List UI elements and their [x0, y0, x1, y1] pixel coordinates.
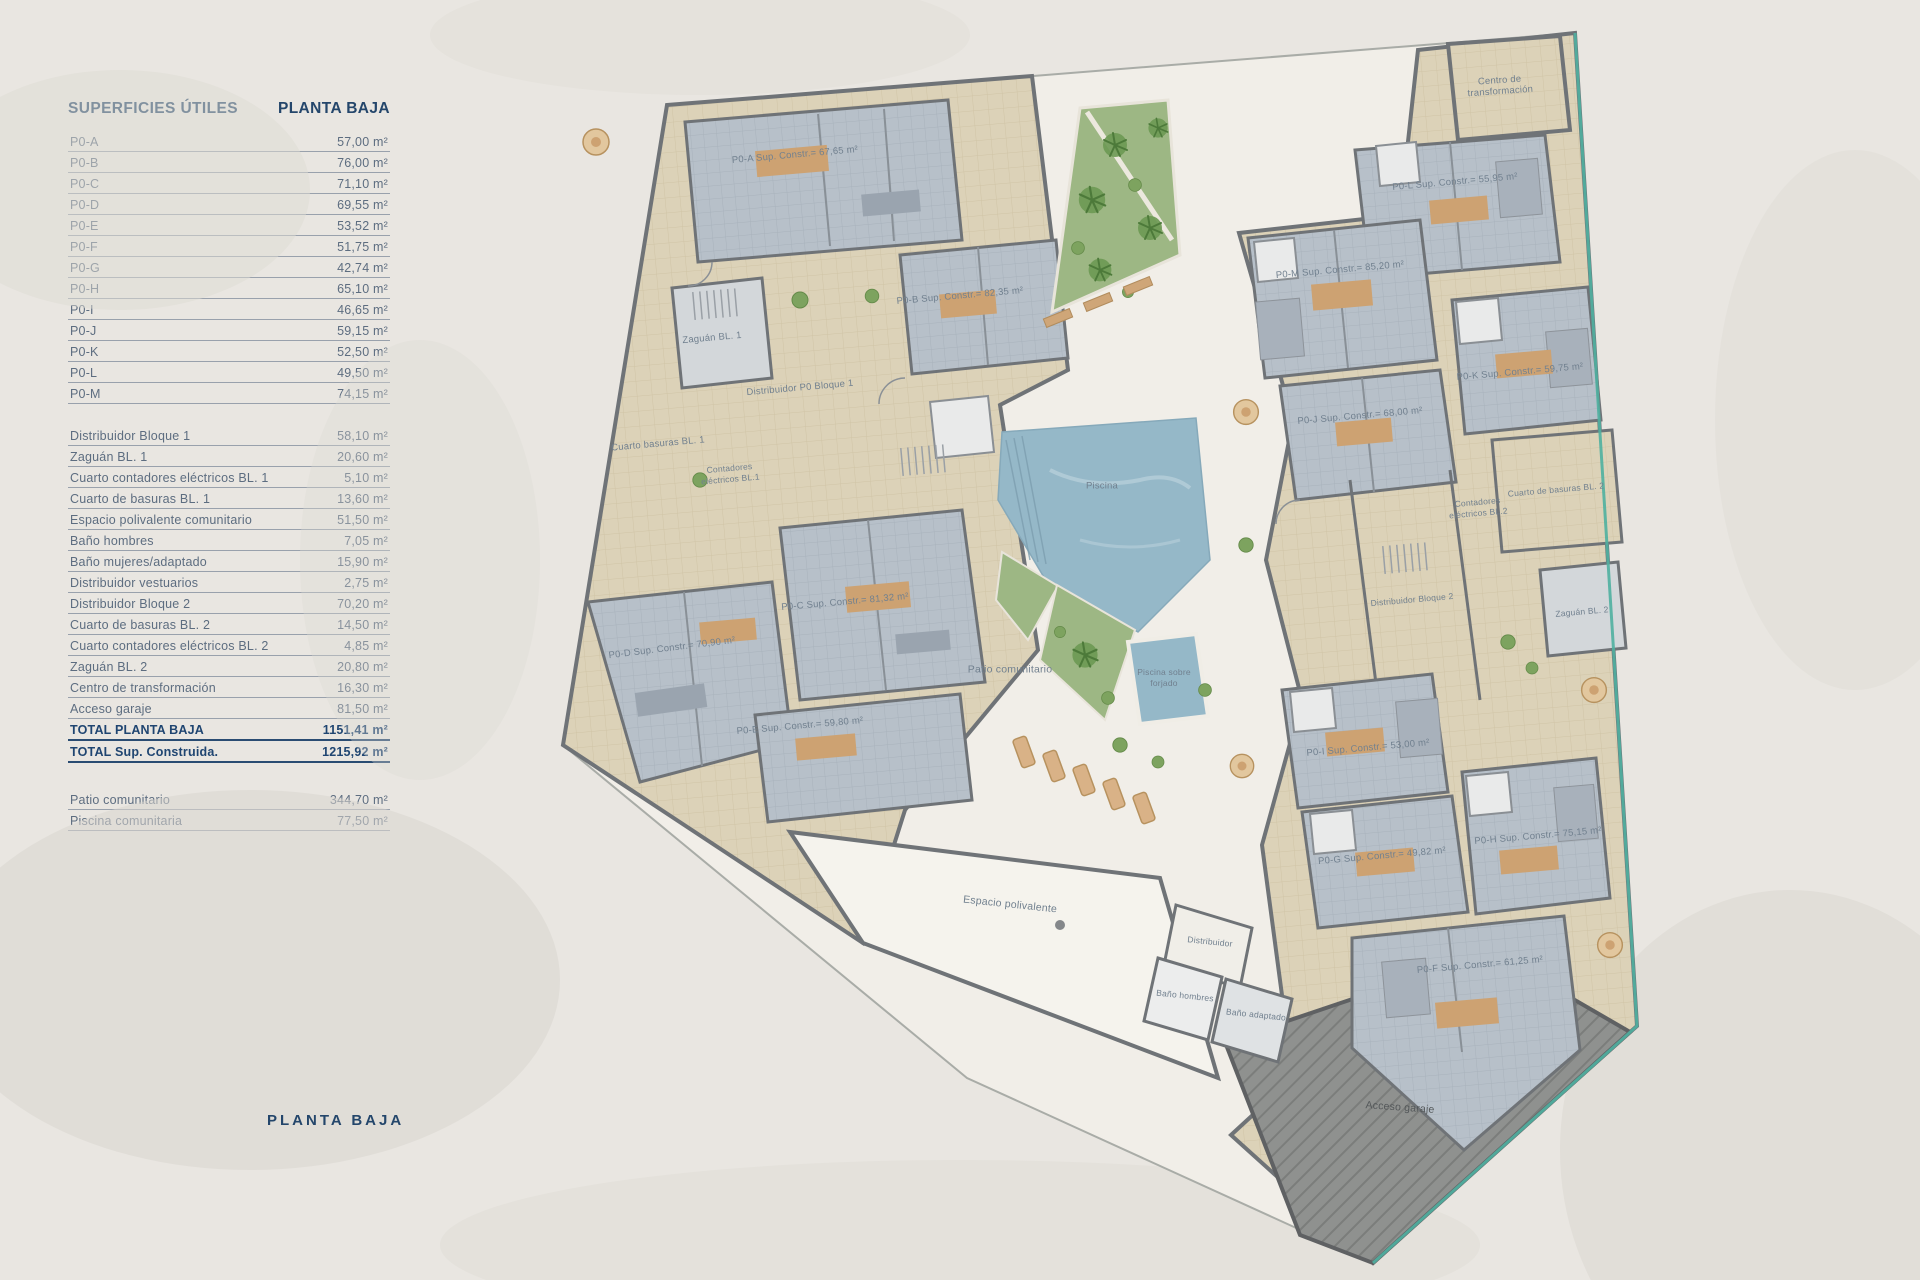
plan-label-piscina: Piscina	[1086, 481, 1118, 492]
plan-label-piscina-forjado: Piscina sobre forjado	[1128, 667, 1200, 689]
plan-label-patio: Patio comunitario	[968, 665, 1053, 676]
floor-plan: P0-A Sup. Constr.= 67,65 m² P0-B Sup. Co…	[0, 0, 1920, 1280]
floor-plan-drawing	[0, 0, 1920, 1280]
plan-title: PLANTA BAJA	[267, 1112, 404, 1129]
page: SUPERFICIES ÚTILES PLANTA BAJA P0-A 57,0…	[0, 0, 1920, 1280]
